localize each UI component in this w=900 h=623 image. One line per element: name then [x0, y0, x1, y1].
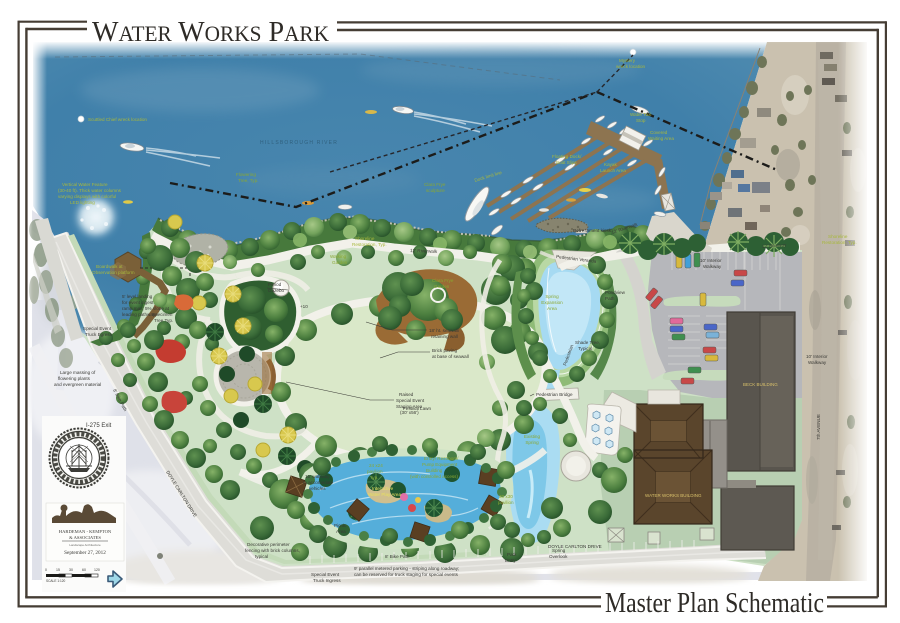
svg-text:8' Bike Path: 8' Bike Path	[385, 554, 410, 559]
svg-text:Restoration, Typ.: Restoration, Typ.	[352, 242, 387, 247]
svg-text:Garden: Garden	[434, 284, 450, 289]
svg-text:sculpture: sculpture	[426, 188, 445, 193]
svg-text:(30' x56'): (30' x56')	[400, 410, 419, 415]
svg-text:Walkway: Walkway	[808, 360, 827, 365]
svg-text:10' Interior: 10' Interior	[806, 354, 828, 359]
svg-text:DOYLE CARLTON DRIVE: DOYLE CARLTON DRIVE	[548, 544, 602, 549]
svg-text:Scuttled Chief wreck location: Scuttled Chief wreck location	[88, 117, 147, 122]
svg-text:and evergreen material: and evergreen material	[54, 382, 101, 387]
svg-text:Restoration, Typ.: Restoration, Typ.	[822, 240, 857, 245]
svg-text:Launch Area: Launch Area	[600, 168, 626, 173]
svg-text:Existing: Existing	[524, 434, 541, 439]
svg-text:(with controlled access): (with controlled access)	[410, 474, 458, 479]
svg-text:September 27, 2012: September 27, 2012	[64, 550, 106, 556]
svg-text:Park: Park	[507, 552, 517, 557]
svg-text:WATER WORKS BUILDING: WATER WORKS BUILDING	[645, 493, 702, 498]
svg-text:0: 0	[45, 568, 47, 572]
svg-text:Waiting Area: Waiting Area	[648, 136, 674, 141]
svg-text:+10: +10	[300, 304, 308, 309]
svg-text:Area: Area	[336, 529, 346, 534]
svg-text:Stop: Stop	[636, 118, 646, 123]
svg-text:Vertical Water Feature: Vertical Water Feature	[62, 182, 108, 187]
svg-text:Truck Egress: Truck Egress	[85, 332, 113, 337]
svg-text:typical: typical	[255, 554, 268, 559]
svg-text:12' Riverwalk: 12' Riverwalk	[410, 248, 438, 254]
svg-text:Shade Tree,: Shade Tree,	[575, 340, 600, 345]
svg-text:pavilion: pavilion	[498, 500, 514, 505]
svg-text:for event digest: for event digest	[122, 300, 154, 305]
svg-text:Interactive: Interactive	[372, 486, 394, 491]
svg-text:Clara Frye: Clara Frye	[424, 182, 446, 187]
svg-text:120: 120	[94, 568, 100, 572]
svg-text:10' Interior: 10' Interior	[700, 258, 722, 263]
svg-text:Refreshment kiosk: Refreshment kiosk	[573, 228, 612, 233]
svg-text:7th AVENUE: 7th AVENUE	[816, 414, 821, 440]
svg-text:Tree Typ.: Tree Typ.	[154, 318, 173, 323]
svg-text:Kayak: Kayak	[604, 162, 617, 167]
svg-text:60: 60	[82, 568, 86, 572]
svg-text:Area: Area	[547, 306, 557, 311]
svg-text:Raised: Raised	[399, 392, 414, 397]
svg-text:Pondview: Pondview	[605, 290, 626, 295]
svg-text:HARDEMAN - KEMPTON: HARDEMAN - KEMPTON	[59, 529, 112, 534]
svg-text:Special Event: Special Event	[311, 572, 340, 577]
svg-text:can be reserved for truck stag: can be reserved for truck staging for sp…	[354, 572, 459, 577]
svg-text:Boardwalk at: Boardwalk at	[96, 264, 123, 269]
svg-text:Picnic: Picnic	[334, 523, 347, 528]
svg-text:Pedestrian Bridge: Pedestrian Bridge	[536, 392, 573, 397]
svg-text:30 x30: 30 x30	[499, 494, 513, 499]
svg-text:Covered: Covered	[650, 130, 668, 135]
svg-text:leading pathways: leading pathways	[122, 312, 158, 317]
svg-text:typ.: typ.	[371, 475, 378, 480]
svg-text:Truck Ingress: Truck Ingress	[313, 578, 341, 583]
svg-text:Typical: Typical	[578, 346, 592, 351]
svg-text:Entry: Entry	[505, 558, 516, 563]
svg-text:vehicles: vehicles	[309, 486, 326, 491]
svg-text:Expansion: Expansion	[541, 300, 563, 305]
svg-text:Staging Area: Staging Area	[396, 404, 423, 409]
svg-text:9' parallel metered parking -: 9' parallel metered parking - striping a…	[354, 566, 459, 571]
svg-text:at base of seawall: at base of seawall	[432, 354, 469, 359]
svg-text:Building: Building	[426, 468, 443, 473]
svg-text:Boat Slips: Boat Slips	[556, 160, 577, 165]
svg-text:BECK BUILDING: BECK BUILDING	[743, 382, 778, 387]
svg-text:to accomedate: to accomedate	[303, 480, 334, 485]
svg-text:Master Plan Schematic: Master Plan Schematic	[605, 588, 824, 619]
svg-text:(30-40 ft). Thick water column: (30-40 ft). Thick water columns	[58, 188, 122, 193]
svg-text:Clara Frye: Clara Frye	[432, 278, 454, 283]
svg-text:pavilion: pavilion	[367, 469, 383, 474]
svg-text:Large massing of: Large massing of	[60, 370, 96, 375]
svg-text:Path: Path	[605, 296, 615, 301]
svg-text:Tree, Typ.: Tree, Typ.	[238, 178, 258, 183]
svg-text:Spring: Spring	[545, 294, 559, 299]
svg-text:SCALE 1:120: SCALE 1:120	[46, 579, 66, 583]
svg-text:I-275 Exit: I-275 Exit	[86, 423, 112, 429]
svg-text:Period: Period	[268, 282, 282, 287]
svg-text:Walking: Walking	[330, 254, 347, 259]
svg-text:fencing with brick columns,: fencing with brick columns,	[245, 548, 300, 553]
svg-text:Observation platform: Observation platform	[92, 270, 135, 275]
svg-text:LED lighting: LED lighting	[70, 200, 95, 205]
svg-text:Overlook: Overlook	[549, 554, 568, 559]
svg-text:Special Event: Special Event	[396, 398, 425, 403]
svg-text:Water Play Area: Water Play Area	[368, 492, 401, 497]
svg-text:Flowering: Flowering	[236, 172, 256, 177]
svg-text:Spring: Spring	[525, 440, 539, 445]
svg-text:flowering plants: flowering plants	[58, 376, 91, 381]
svg-text:Shoreline: Shoreline	[828, 234, 848, 239]
svg-text:ramp max; 5% slope at: ramp max; 5% slope at	[122, 306, 170, 311]
svg-text:HILLSBOROUGH RIVER: HILLSBOROUGH RIVER	[260, 140, 338, 146]
svg-text:Landscape Architecture: Landscape Architecture	[69, 543, 101, 547]
svg-text:wreck location: wreck location	[616, 64, 646, 69]
svg-text:WATER WORKS PARK: WATER WORKS PARK	[92, 16, 329, 48]
svg-text:24 x24: 24 x24	[369, 463, 383, 468]
svg-text:Water Taxi: Water Taxi	[630, 112, 651, 117]
svg-text:Floating Dock/: Floating Dock/	[552, 154, 582, 159]
svg-text:& ASSOCIATES: & ASSOCIATES	[69, 535, 101, 540]
svg-text:30: 30	[69, 568, 73, 572]
svg-text:Decorative perimeter: Decorative perimeter	[247, 542, 290, 547]
svg-text:15: 15	[56, 568, 60, 572]
svg-text:Entry/ Restroom/: Entry/ Restroom/	[424, 456, 459, 461]
svg-text:18' ht. seawall/: 18' ht. seawall/	[429, 328, 460, 333]
svg-text:5' level landing: 5' level landing	[122, 294, 153, 299]
svg-text:Mystery: Mystery	[619, 58, 636, 63]
svg-text:Special Event: Special Event	[83, 326, 112, 331]
svg-text:Walkway: Walkway	[703, 264, 722, 269]
svg-text:retaining wall: retaining wall	[431, 334, 458, 339]
svg-text:Pump Equipment: Pump Equipment	[422, 462, 458, 467]
svg-text:15' walkway: 15' walkway	[305, 474, 330, 479]
svg-text:Shoreline: Shoreline	[355, 236, 375, 241]
svg-text:varying displays with colorful: varying displays with colorful	[58, 194, 116, 199]
svg-text:Brick paving: Brick paving	[432, 348, 457, 353]
svg-text:Garden: Garden	[332, 260, 348, 265]
